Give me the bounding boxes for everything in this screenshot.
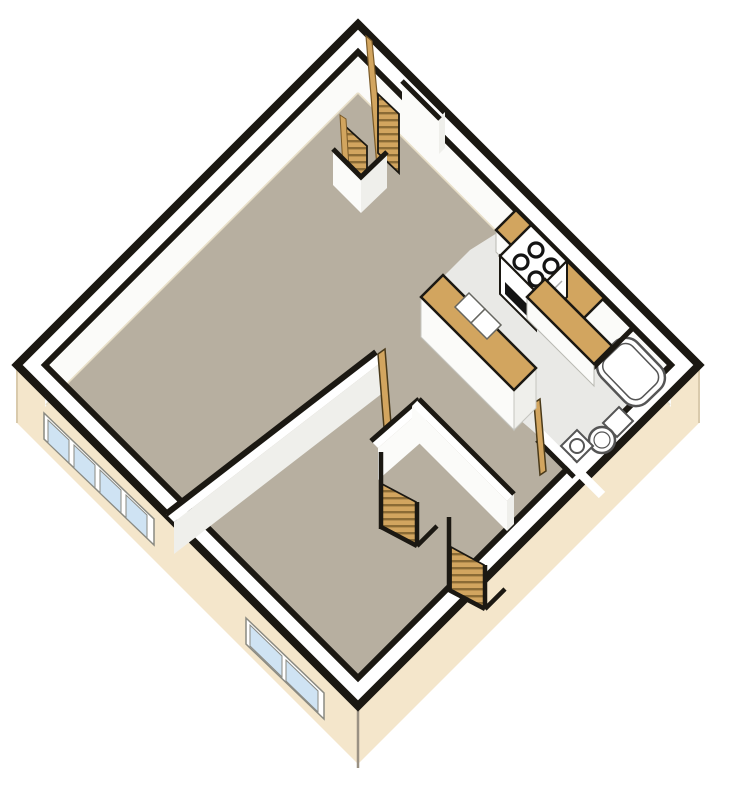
floorplan-stage bbox=[0, 0, 750, 795]
vanity-sink-basin bbox=[570, 439, 584, 453]
floorplan-svg bbox=[0, 0, 750, 795]
toilet-seat bbox=[594, 432, 610, 448]
burner-2 bbox=[529, 243, 543, 257]
burner-1 bbox=[514, 255, 528, 269]
